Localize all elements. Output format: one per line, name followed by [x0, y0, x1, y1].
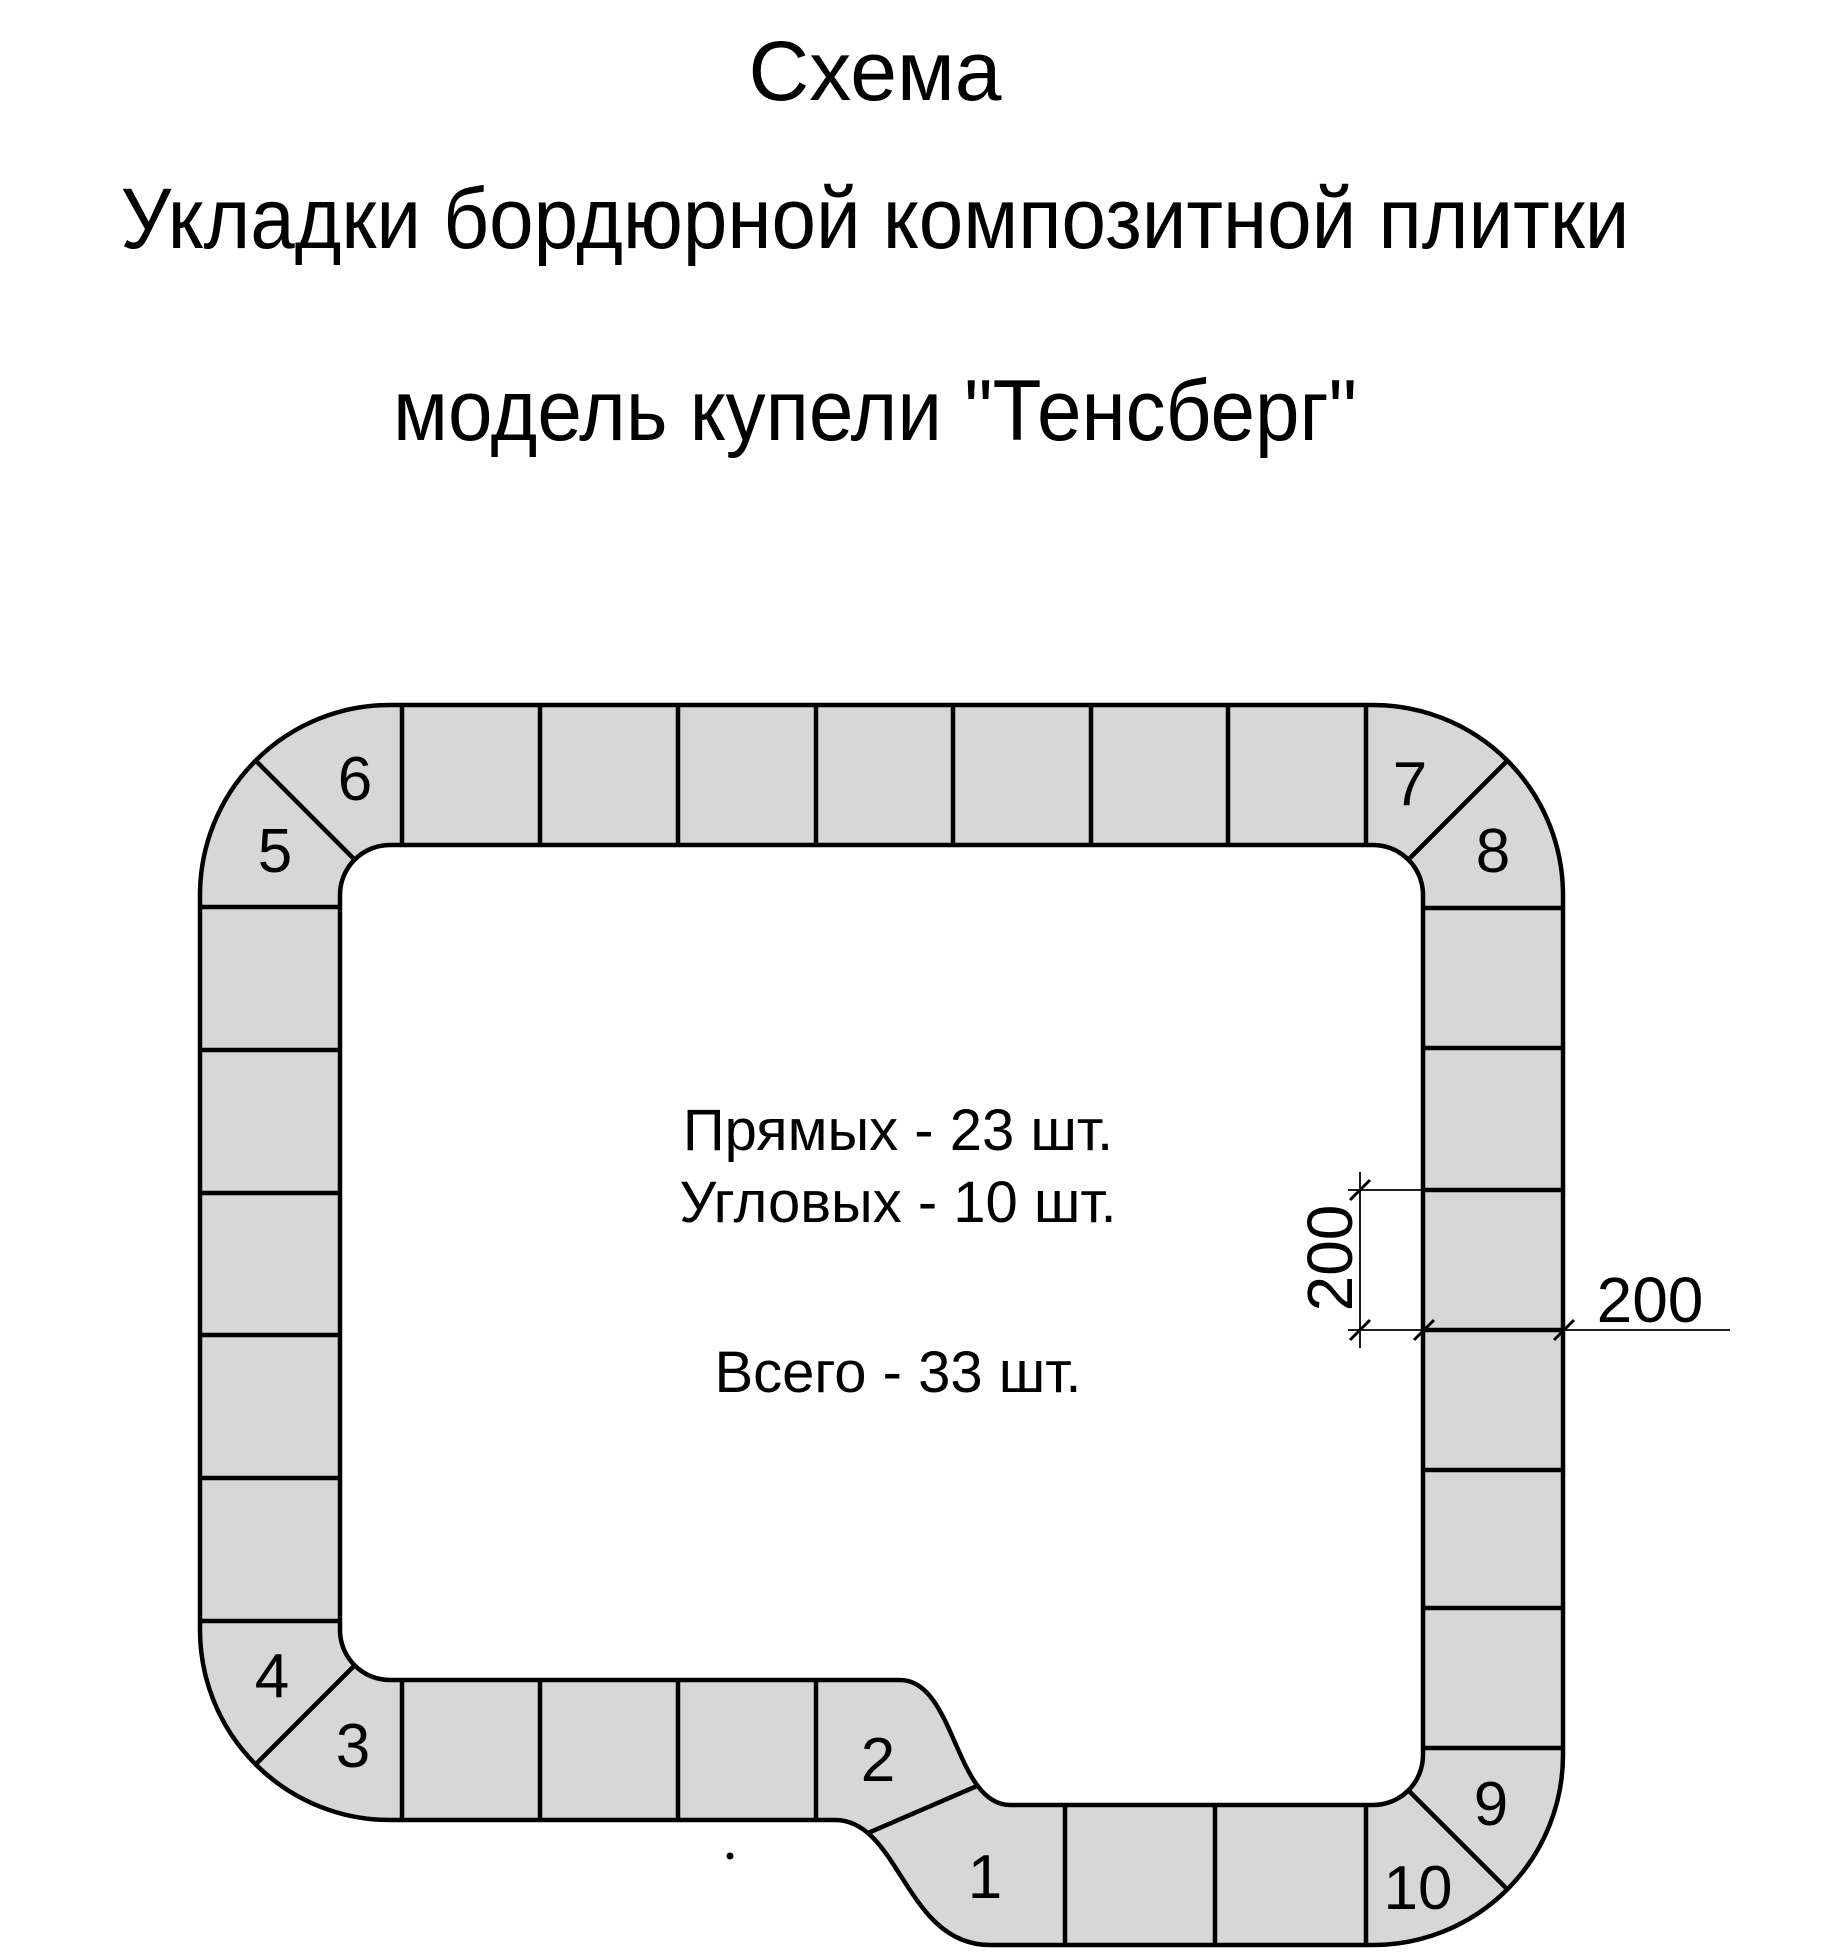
schematic-page: Схема Укладки бордюрной композитной плит… [0, 0, 1827, 1955]
tile-width-value: 200 [1597, 1264, 1704, 1336]
corner-label-8: 8 [1476, 817, 1510, 886]
corner-label-10: 10 [1384, 1854, 1453, 1923]
corner-label-4: 4 [255, 1642, 289, 1711]
corner-label-2: 2 [861, 1726, 895, 1795]
page-title: Схема [749, 24, 1002, 118]
total-count-text: Всего - 33 шт. [714, 1340, 1081, 1405]
corner-label-6: 6 [338, 745, 372, 814]
page-subtitle-line2: модель купели "Тенсберг" [393, 362, 1357, 458]
straight-count-text: Прямых - 23 шт. [683, 1098, 1113, 1163]
stray-dot [727, 1853, 734, 1860]
corner-count-text: Угловых - 10 шт. [679, 1170, 1116, 1235]
corner-label-5: 5 [258, 817, 292, 886]
corner-label-1: 1 [968, 1843, 1002, 1912]
corner-label-3: 3 [336, 1712, 370, 1781]
tile-layout-diagram: Схема Укладки бордюрной композитной плит… [0, 0, 1827, 1955]
corner-label-9: 9 [1474, 1770, 1508, 1839]
tile-length-value: 200 [1294, 1205, 1366, 1312]
page-subtitle-line1: Укладки бордюрной композитной плитки [121, 170, 1630, 266]
corner-label-7: 7 [1393, 750, 1427, 819]
tile-count-summary: Прямых - 23 шт. Угловых - 10 шт. Всего -… [679, 1098, 1116, 1405]
